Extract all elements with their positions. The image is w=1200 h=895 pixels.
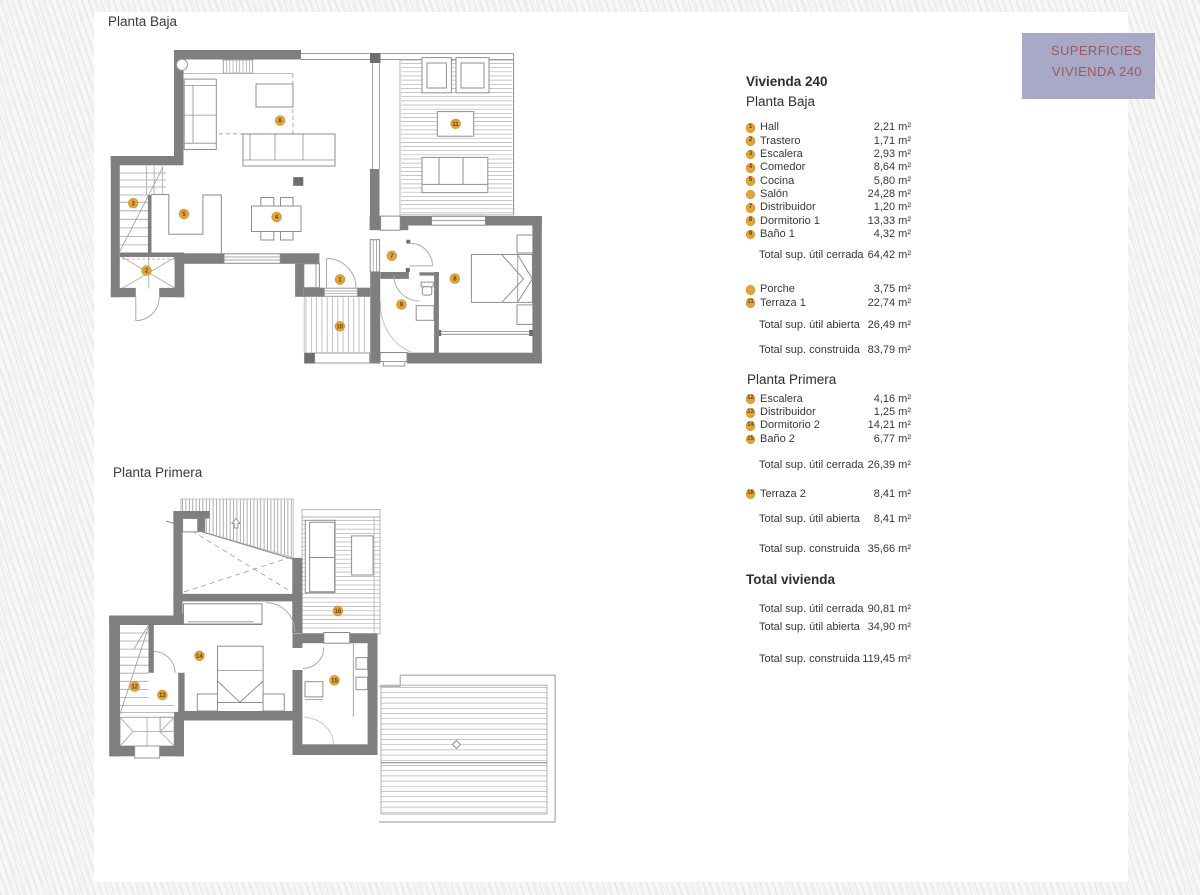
svg-text:14: 14 — [196, 654, 203, 660]
svg-text:15: 15 — [331, 678, 338, 684]
svg-text:13: 13 — [159, 693, 166, 699]
svg-text:10: 10 — [336, 324, 343, 330]
svg-text:12: 12 — [131, 685, 138, 691]
svg-text:11: 11 — [452, 122, 459, 128]
svg-text:16: 16 — [335, 609, 342, 615]
